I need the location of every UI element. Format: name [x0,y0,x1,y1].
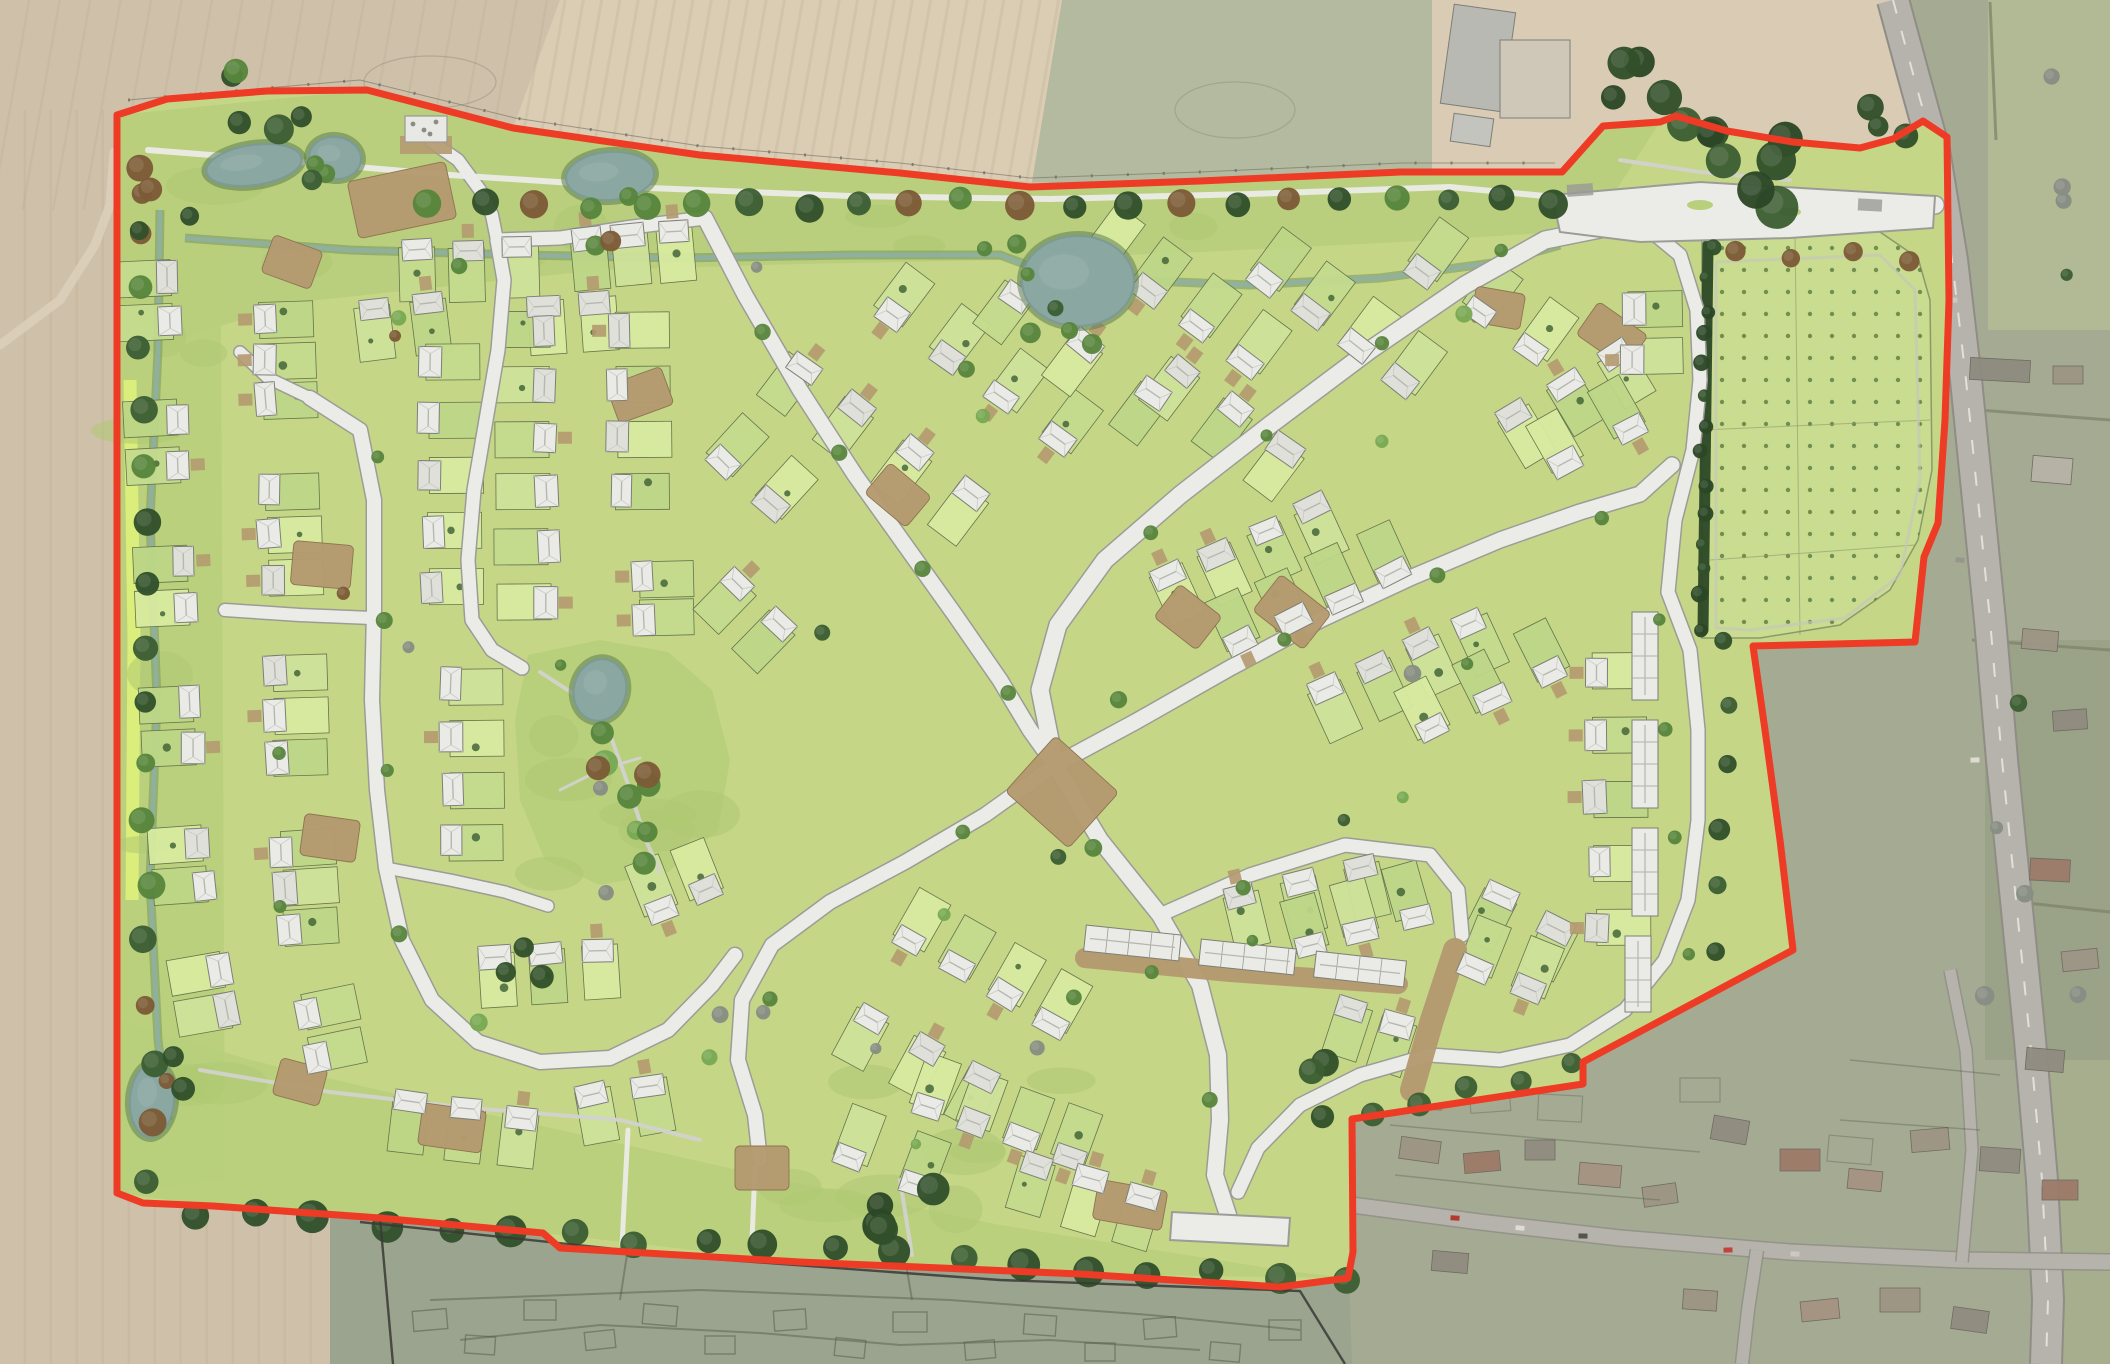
driveway [615,570,629,582]
house [269,837,293,868]
car [1515,1225,1524,1231]
house [1582,780,1607,814]
orchard-field [1702,228,1932,638]
aerial-house [1431,1250,1469,1273]
house [422,516,445,549]
house [254,382,277,417]
aerial-house [2052,709,2087,731]
house [1622,293,1646,326]
aerial-house [2061,948,2099,972]
house [184,828,209,859]
house [418,461,441,491]
house [1585,913,1610,942]
house [166,451,189,480]
house [401,238,432,261]
terrace-block [1625,936,1651,1012]
driveway [462,224,474,238]
play-area [400,116,452,154]
car [1450,1215,1459,1220]
driveway [637,1059,651,1075]
house [442,773,464,806]
house [440,667,462,701]
house [276,914,302,946]
house [167,405,189,435]
house [526,295,560,317]
car [1970,757,1979,762]
house [659,220,690,243]
driveway [196,554,211,567]
house [606,421,629,452]
house [417,402,439,433]
house [256,518,281,548]
masterplan-svg [0,0,2110,1364]
street [225,610,372,618]
house [606,369,627,401]
house [537,530,560,563]
aerial-house [1880,1288,1920,1312]
house [179,685,201,718]
terrace-block [1632,828,1658,916]
house [534,475,559,507]
driveway [1570,922,1584,934]
driveway [424,731,438,743]
aerial-house [1525,1140,1555,1160]
masterplan-image [0,0,2110,1364]
aerial-house [1463,1150,1501,1173]
driveway [1569,729,1583,741]
aerial-house [1800,1298,1840,1322]
driveway [665,204,678,219]
southern-turning-area [1170,1212,1290,1246]
driveway [558,432,572,444]
driveway [559,597,573,609]
driveway [586,276,599,291]
house [412,291,444,314]
house [294,997,322,1030]
aerial-house [1910,1127,1950,1152]
house [272,871,298,906]
house [259,474,280,505]
house [418,346,442,377]
car [1723,1247,1732,1252]
driveway [517,1091,531,1106]
house [1586,658,1608,687]
driveway [617,614,631,626]
shared-surface [290,540,354,589]
house [253,304,276,333]
aerial-house [2025,1047,2065,1072]
aerial-house [2053,366,2083,384]
house [262,655,287,686]
driveway [246,575,260,587]
driveway [1605,354,1619,366]
driveway [238,393,252,405]
driveway [247,710,261,722]
driveway [242,528,256,540]
terrace-block [1632,612,1658,700]
aerial-house [2042,1180,2078,1200]
aerial-house [1951,1307,1990,1334]
shared-surface [735,1146,789,1190]
aerial-house [1682,1289,1717,1311]
farm-building [1450,113,1494,146]
house [630,1074,665,1099]
driveway [590,923,603,938]
house [533,368,556,402]
house [173,546,194,576]
aerial-house [1979,1147,2021,1174]
aerial-house [2031,455,2073,484]
house [158,306,183,336]
house [533,423,557,453]
house [156,260,177,293]
house [450,1097,482,1120]
house [1585,720,1607,751]
house [582,939,613,962]
house [181,732,205,764]
farm-building [1500,40,1570,118]
aerial-house [2029,858,2070,882]
house [441,825,462,855]
driveway [190,458,205,471]
house [302,1041,331,1074]
house [174,593,198,623]
aerial-house [1578,1162,1622,1188]
driveway [206,741,221,754]
shared-surface [299,813,360,862]
house [533,315,555,346]
house [262,565,285,595]
house [263,699,287,732]
car [1955,557,1964,563]
house [1620,345,1644,374]
house [253,344,276,375]
house [359,297,390,320]
terrace-block [1632,720,1658,808]
driveway [419,276,433,291]
house [206,952,234,987]
driveway [1569,667,1583,679]
house [611,474,632,507]
aerial-field [1988,0,2110,330]
driveway [238,354,252,366]
house [632,604,656,636]
house [1589,847,1610,877]
aerial-house [1642,1183,1678,1208]
aerial-house [2021,628,2059,651]
house [578,290,610,315]
car [1578,1233,1587,1238]
house [502,236,532,257]
house [192,871,217,902]
house [505,1106,538,1132]
house [439,722,463,752]
aerial-house [1969,357,2030,382]
house [608,313,630,347]
house [631,561,653,592]
house [534,587,558,619]
driveway [254,847,269,860]
house [420,572,443,604]
aerial-house [1780,1149,1820,1171]
house [393,1089,428,1114]
driveway [592,325,606,337]
driveway [1568,791,1582,803]
driveway [238,313,252,325]
car [1790,1251,1799,1256]
aerial-house [1847,1168,1883,1191]
